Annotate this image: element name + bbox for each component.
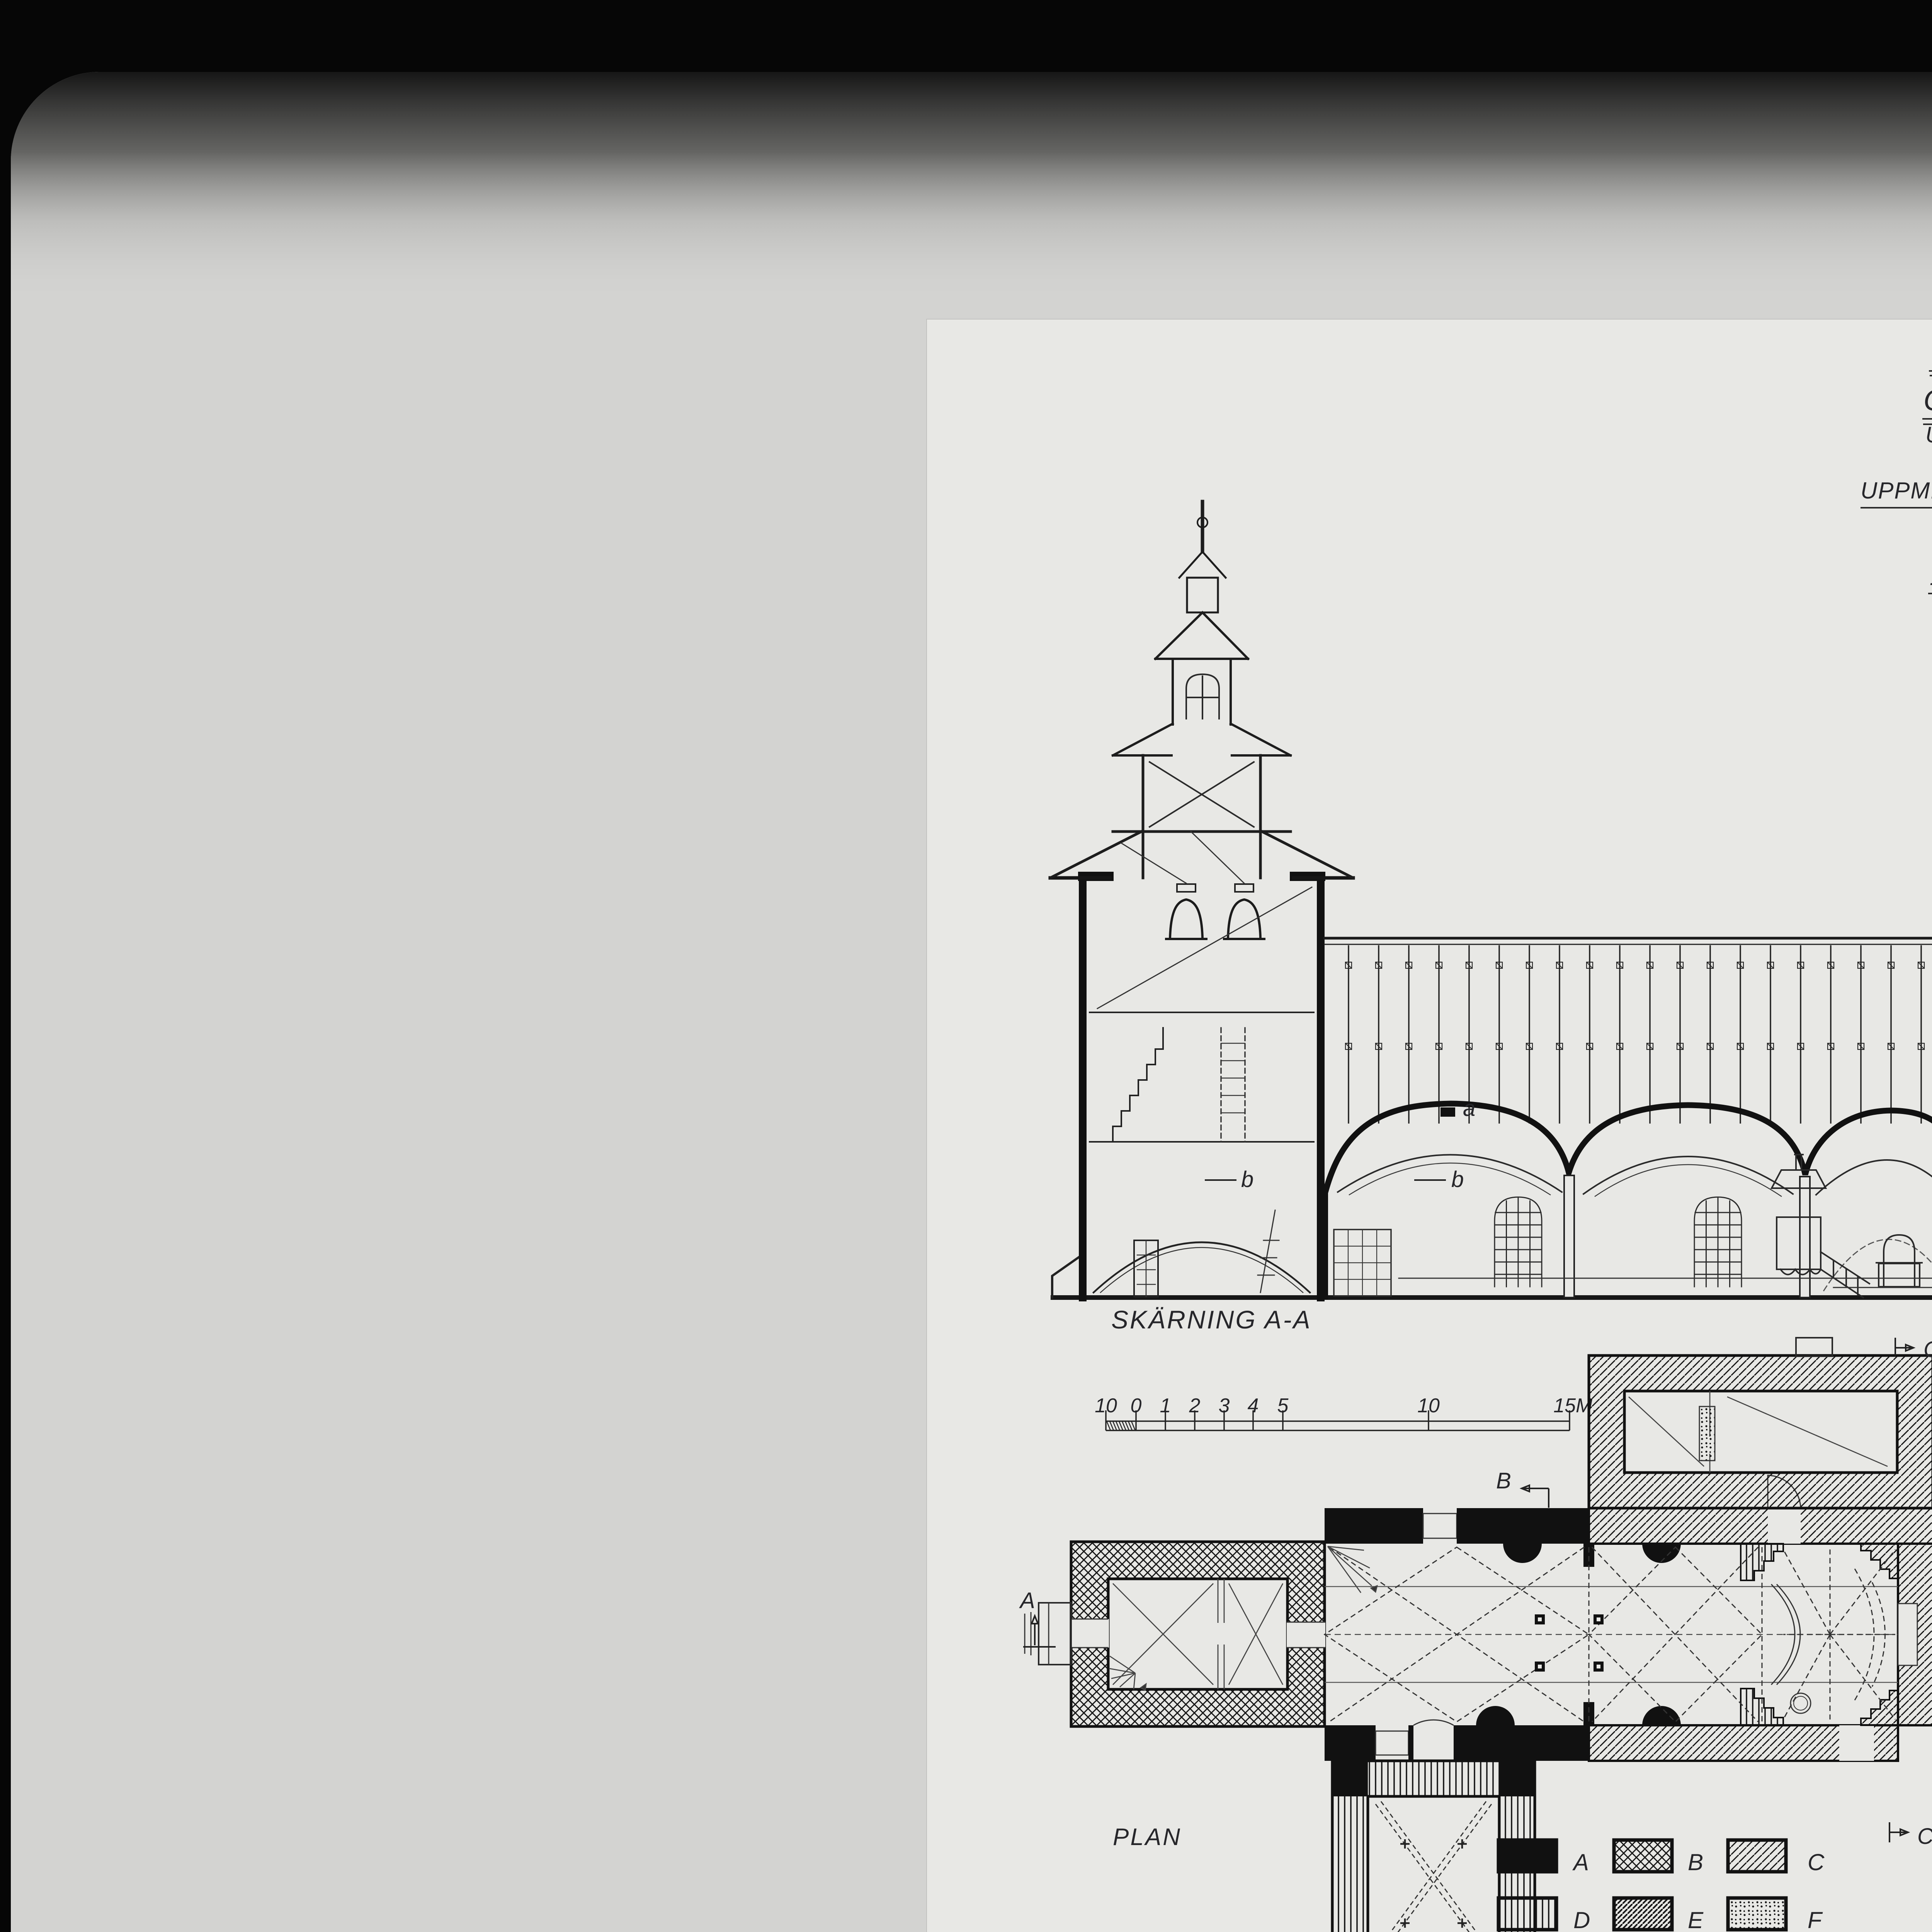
title-province: UPPLAND xyxy=(1925,422,1932,447)
section-detail-b-left: b xyxy=(1241,1167,1253,1192)
title-scale: 1:100 xyxy=(1930,563,1932,590)
legend-key: E xyxy=(1688,1907,1704,1932)
legend-swatch-vertical xyxy=(1498,1898,1556,1930)
section-label: SKÄRNING A-A xyxy=(1111,1305,1312,1334)
plan-east-wall xyxy=(1898,1544,1932,1725)
microfilm-scan: ÖVERGRAN SN ÖVERGRAN KYRKA UPPLAND UPPM.… xyxy=(0,0,1932,1932)
section-detail-b-right: b xyxy=(1451,1167,1464,1192)
legend-swatch-dense-diagonal xyxy=(1614,1898,1672,1930)
legend-swatch-solid xyxy=(1498,1840,1556,1872)
legend-swatch-dots xyxy=(1728,1898,1786,1930)
title-subject: UPPM. PLAN SKÄRNING A-A xyxy=(1861,478,1932,503)
section-corbel-mark xyxy=(1440,1107,1455,1117)
marker-west-a: A xyxy=(1019,1588,1035,1613)
legend-key: C xyxy=(1808,1849,1825,1875)
marker-bottom-c: C xyxy=(1917,1824,1932,1849)
legend-swatch-crosshatch xyxy=(1614,1840,1672,1872)
plan-tower-east-arch xyxy=(1287,1622,1325,1648)
legend-swatch-diagonal xyxy=(1728,1840,1786,1872)
plan-label: PLAN xyxy=(1113,1824,1182,1850)
plan-tower-west-door xyxy=(1071,1619,1109,1648)
legend-key: B xyxy=(1688,1849,1703,1875)
plan-sacristy-pillar xyxy=(1699,1406,1715,1461)
marker-top-b: B xyxy=(1496,1468,1511,1493)
legend-key: A xyxy=(1572,1849,1589,1875)
section-detail-a: a xyxy=(1463,1096,1475,1121)
title-church: ÖVERGRAN KYRKA xyxy=(1923,384,1932,417)
scan-canvas: ÖVERGRAN SN ÖVERGRAN KYRKA UPPLAND UPPM.… xyxy=(0,0,1932,1932)
legend-key: F xyxy=(1808,1907,1823,1932)
marker-top-c: C xyxy=(1923,1337,1932,1362)
legend-key: D xyxy=(1573,1907,1590,1932)
